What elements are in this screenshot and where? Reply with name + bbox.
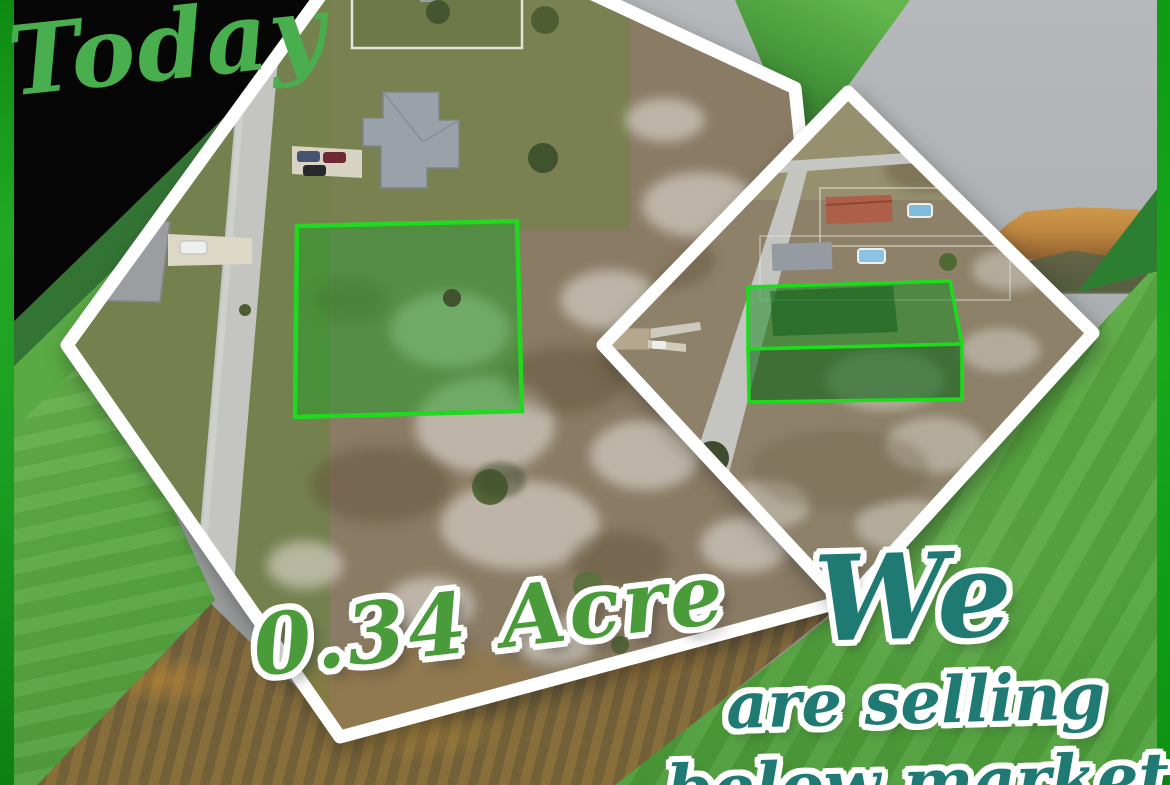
promo-line-we: We (656, 531, 1169, 662)
promo-text-block: We are selling below market (656, 531, 1170, 785)
gray-roof-house (772, 242, 833, 271)
red-roof-house (826, 195, 893, 224)
lot-highlight-secondary (748, 281, 962, 402)
promo-line-below-market: below market (662, 743, 1170, 785)
promo-line-are-selling: are selling (660, 663, 1170, 740)
green-edge-strip-left (0, 0, 14, 785)
real-estate-flyer: Today 0.34 Acre We are selling below mar… (0, 0, 1170, 785)
